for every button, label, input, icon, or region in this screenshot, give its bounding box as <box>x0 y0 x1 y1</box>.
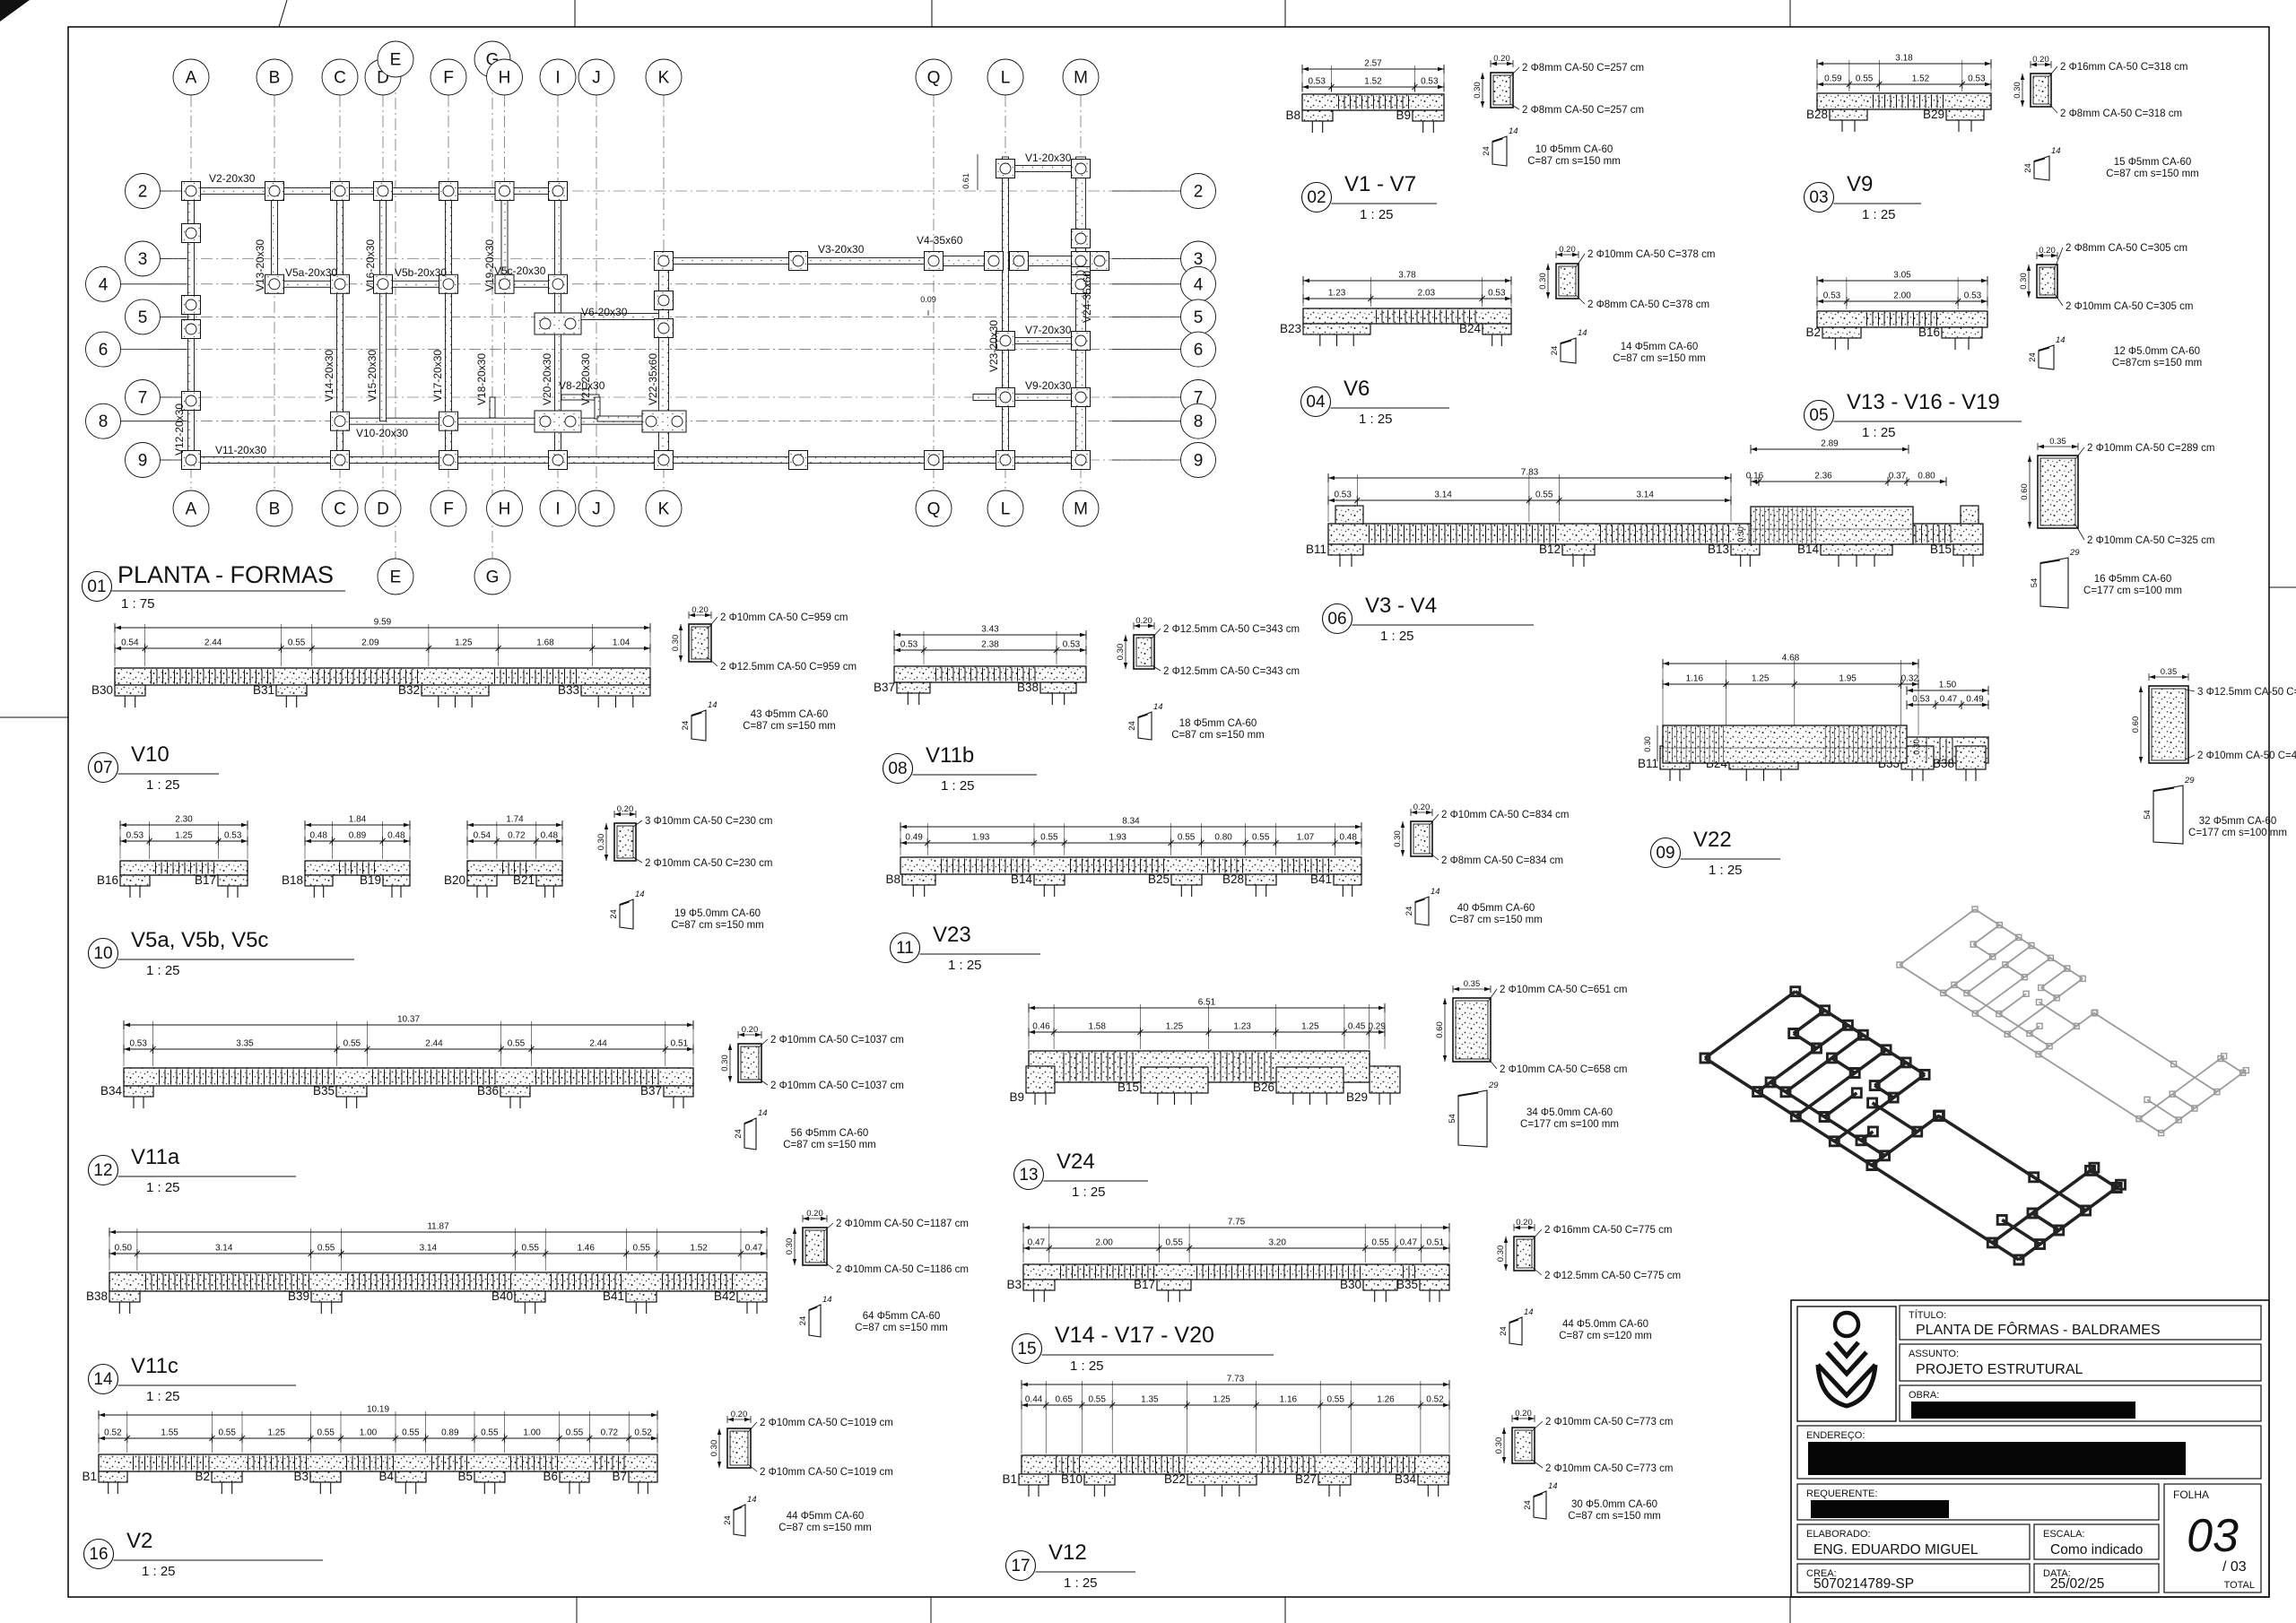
svg-text:1.16: 1.16 <box>1686 674 1704 684</box>
svg-text:0.55: 0.55 <box>1326 1395 1344 1405</box>
svg-text:PLANTA - FORMAS: PLANTA - FORMAS <box>117 561 334 588</box>
svg-text:3.18: 3.18 <box>1895 54 1913 64</box>
svg-text:54: 54 <box>1448 1114 1457 1124</box>
svg-text:B12: B12 <box>1539 542 1561 556</box>
svg-text:15: 15 <box>1017 1340 1036 1358</box>
svg-text:0.20: 0.20 <box>1135 616 1152 626</box>
svg-text:0.55: 0.55 <box>1371 1238 1389 1248</box>
svg-text:0.53: 0.53 <box>1823 291 1841 301</box>
svg-text:2 Φ12.5mm CA-50 C=775 cm: 2 Φ12.5mm CA-50 C=775 cm <box>1544 1271 1681 1281</box>
svg-text:9: 9 <box>1194 452 1204 471</box>
svg-text:6: 6 <box>1194 341 1204 360</box>
svg-text:H: H <box>499 500 511 519</box>
svg-text:1 : 25: 1 : 25 <box>1862 207 1896 222</box>
svg-text:V12: V12 <box>1048 1541 1087 1565</box>
svg-text:0.20: 0.20 <box>1413 803 1431 812</box>
svg-text:7: 7 <box>138 389 148 408</box>
svg-text:/ 03: / 03 <box>2222 1559 2247 1575</box>
svg-text:V22-35x60: V22-35x60 <box>647 353 659 405</box>
svg-text:I: I <box>555 500 560 519</box>
svg-text:0.47: 0.47 <box>745 1244 763 1254</box>
svg-text:43 Φ5mm CA-60: 43 Φ5mm CA-60 <box>751 709 829 720</box>
svg-text:56 Φ5mm CA-60: 56 Φ5mm CA-60 <box>791 1128 869 1139</box>
svg-text:0.30: 0.30 <box>671 635 681 652</box>
svg-text:I: I <box>555 69 560 88</box>
svg-text:0.30: 0.30 <box>2019 273 2029 290</box>
svg-text:PROJETO ESTRUTURAL: PROJETO ESTRUTURAL <box>1916 1362 2083 1377</box>
svg-text:14: 14 <box>1524 1307 1534 1317</box>
svg-text:B30: B30 <box>1340 1278 1361 1291</box>
svg-text:0.53: 0.53 <box>1912 695 1930 705</box>
svg-text:V11b: V11b <box>926 743 974 768</box>
svg-text:1.00: 1.00 <box>360 1428 378 1438</box>
svg-text:0.53: 0.53 <box>1968 74 1986 84</box>
svg-text:1 : 25: 1 : 25 <box>146 1180 180 1195</box>
svg-text:C=177 cm s=100 mm: C=177 cm s=100 mm <box>2083 586 2182 596</box>
svg-text:0.20: 0.20 <box>1515 1409 1532 1419</box>
svg-text:V12-20x30: V12-20x30 <box>173 404 186 456</box>
svg-text:C=177 cm s=100 mm: C=177 cm s=100 mm <box>1520 1119 1619 1130</box>
svg-text:B8: B8 <box>1285 108 1300 122</box>
svg-text:C=87 cm s=150 mm: C=87 cm s=150 mm <box>2106 169 2199 179</box>
svg-text:0.30: 0.30 <box>1912 739 1921 755</box>
svg-text:B10: B10 <box>1061 1472 1083 1486</box>
svg-text:14: 14 <box>758 1108 768 1118</box>
svg-text:1 : 25: 1 : 25 <box>1862 425 1896 440</box>
svg-text:B32: B32 <box>398 683 420 697</box>
svg-text:0.80: 0.80 <box>1918 472 1935 482</box>
svg-text:0.30: 0.30 <box>709 1440 719 1457</box>
svg-text:B6: B6 <box>543 1470 558 1483</box>
svg-text:C: C <box>334 69 346 88</box>
svg-text:Q: Q <box>927 69 941 88</box>
svg-text:0.53: 0.53 <box>224 831 242 841</box>
svg-text:PLANTA DE FÔRMAS - BALDRAMES: PLANTA DE FÔRMAS - BALDRAMES <box>1916 1321 2161 1338</box>
svg-text:2 Φ8mm CA-50 C=305 cm: 2 Φ8mm CA-50 C=305 cm <box>2066 243 2187 254</box>
svg-text:3 Φ12.5mm CA-50 C=468 cm: 3 Φ12.5mm CA-50 C=468 cm <box>2197 687 2296 698</box>
svg-text:B8: B8 <box>885 872 900 886</box>
svg-text:1 : 25: 1 : 25 <box>1709 863 1743 878</box>
svg-text:B23: B23 <box>1280 322 1301 335</box>
svg-text:V13-20x30: V13-20x30 <box>254 239 266 291</box>
svg-text:19 Φ5.0mm CA-60: 19 Φ5.0mm CA-60 <box>674 908 761 919</box>
svg-text:2 Φ8mm CA-50 C=257 cm: 2 Φ8mm CA-50 C=257 cm <box>1522 63 1644 74</box>
svg-text:14: 14 <box>822 1295 832 1305</box>
svg-text:0.55: 0.55 <box>1535 490 1553 500</box>
svg-text:24: 24 <box>2023 163 2033 173</box>
svg-text:15 Φ5mm CA-60: 15 Φ5mm CA-60 <box>2114 157 2192 168</box>
svg-text:C=87 cm s=150 mm: C=87 cm s=150 mm <box>671 920 764 931</box>
svg-text:B15: B15 <box>1930 542 1952 556</box>
svg-text:2.44: 2.44 <box>204 638 222 648</box>
svg-text:2: 2 <box>1194 183 1204 202</box>
svg-text:24: 24 <box>1550 346 1560 356</box>
svg-text:1.16: 1.16 <box>1280 1395 1298 1405</box>
svg-text:0.47: 0.47 <box>1028 1238 1046 1248</box>
svg-text:0.54: 0.54 <box>121 638 139 648</box>
svg-text:06: 06 <box>1327 610 1346 629</box>
svg-text:0.30: 0.30 <box>1643 736 1652 752</box>
svg-text:B: B <box>269 69 281 88</box>
svg-text:0.30: 0.30 <box>785 1238 795 1255</box>
svg-text:2: 2 <box>138 183 148 202</box>
svg-text:1 : 25: 1 : 25 <box>146 963 180 978</box>
svg-text:1.58: 1.58 <box>1088 1022 1106 1032</box>
svg-text:2 Φ10mm CA-50 C=305 cm: 2 Φ10mm CA-50 C=305 cm <box>2066 301 2193 312</box>
svg-text:7.73: 7.73 <box>1227 1375 1245 1384</box>
svg-text:1.52: 1.52 <box>690 1244 708 1254</box>
svg-text:2 Φ16mm CA-50 C=775 cm: 2 Φ16mm CA-50 C=775 cm <box>1544 1225 1672 1236</box>
svg-text:V2-20x30: V2-20x30 <box>209 172 256 185</box>
svg-text:B18: B18 <box>282 873 303 887</box>
svg-text:V23-20x30: V23-20x30 <box>987 320 1000 372</box>
svg-text:2 Φ12.5mm CA-50 C=343 cm: 2 Φ12.5mm CA-50 C=343 cm <box>1163 624 1300 635</box>
svg-text:J: J <box>592 500 601 519</box>
svg-text:2 Φ8mm CA-50 C=318 cm: 2 Φ8mm CA-50 C=318 cm <box>2060 108 2182 119</box>
svg-text:1.07: 1.07 <box>1297 833 1315 843</box>
svg-text:1 : 25: 1 : 25 <box>941 778 975 794</box>
svg-text:0.30: 0.30 <box>1538 273 1548 290</box>
svg-text:0.55: 0.55 <box>1040 833 1058 843</box>
svg-text:1.93: 1.93 <box>972 833 990 843</box>
svg-text:M: M <box>1074 500 1088 519</box>
svg-text:0.16: 0.16 <box>1746 472 1764 482</box>
svg-text:V10-20x30: V10-20x30 <box>356 427 408 439</box>
svg-text:0.20: 0.20 <box>806 1209 823 1219</box>
svg-text:1.25: 1.25 <box>1213 1395 1231 1405</box>
svg-text:V5a-20x30: V5a-20x30 <box>285 266 337 279</box>
svg-text:V6-20x30: V6-20x30 <box>581 306 628 318</box>
svg-text:2 Φ10mm CA-50 C=773 cm: 2 Φ10mm CA-50 C=773 cm <box>1545 1463 1673 1474</box>
svg-text:2.03: 2.03 <box>1418 289 1436 299</box>
svg-text:B38: B38 <box>86 1289 108 1303</box>
svg-text:24: 24 <box>2028 352 2038 362</box>
svg-text:2 Φ10mm CA-50 C=289 cm: 2 Φ10mm CA-50 C=289 cm <box>2087 443 2214 454</box>
svg-text:2 Φ10mm CA-50 C=773 cm: 2 Φ10mm CA-50 C=773 cm <box>1545 1417 1673 1428</box>
svg-text:0.32: 0.32 <box>1901 674 1919 684</box>
svg-text:1.52: 1.52 <box>1364 77 1382 87</box>
svg-text:2 Φ8mm CA-50 C=834 cm: 2 Φ8mm CA-50 C=834 cm <box>1441 855 1563 866</box>
svg-text:08: 08 <box>888 759 907 778</box>
svg-text:0.20: 0.20 <box>2032 55 2049 65</box>
svg-text:Como indicado: Como indicado <box>2050 1542 2143 1558</box>
svg-text:0.61: 0.61 <box>961 173 970 189</box>
svg-text:V13 - V16 - V19: V13 - V16 - V19 <box>1847 390 2000 414</box>
svg-text:6: 6 <box>99 341 109 360</box>
svg-text:1.93: 1.93 <box>1109 833 1126 843</box>
svg-text:24: 24 <box>681 721 691 731</box>
svg-text:B28: B28 <box>1806 108 1828 121</box>
svg-text:0.55: 0.55 <box>1178 833 1196 843</box>
svg-text:B3: B3 <box>1006 1278 1022 1291</box>
svg-text:0.49: 0.49 <box>1966 695 1984 705</box>
svg-text:10.19: 10.19 <box>367 1405 389 1415</box>
svg-text:B39: B39 <box>288 1289 309 1303</box>
svg-text:Q: Q <box>927 500 941 519</box>
svg-text:8.34: 8.34 <box>1122 817 1140 827</box>
svg-text:14: 14 <box>1578 328 1587 338</box>
svg-text:3.78: 3.78 <box>1398 271 1416 281</box>
svg-text:C=87 cm s=150 mm: C=87 cm s=150 mm <box>855 1323 948 1333</box>
svg-text:C=87 cm s=150 mm: C=87 cm s=150 mm <box>783 1140 876 1150</box>
svg-text:04: 04 <box>1306 393 1326 412</box>
svg-text:7.83: 7.83 <box>1521 468 1539 478</box>
svg-text:1.23: 1.23 <box>1233 1022 1251 1032</box>
svg-text:44 Φ5mm CA-60: 44 Φ5mm CA-60 <box>787 1511 865 1522</box>
svg-text:V11-20x30: V11-20x30 <box>215 444 266 456</box>
svg-text:2 Φ12.5mm CA-50 C=343 cm: 2 Φ12.5mm CA-50 C=343 cm <box>1163 666 1300 677</box>
svg-text:24: 24 <box>609 909 619 919</box>
svg-text:3.35: 3.35 <box>236 1039 254 1049</box>
svg-text:0.55: 0.55 <box>521 1244 539 1254</box>
svg-text:32 Φ5mm CA-60: 32 Φ5mm CA-60 <box>2199 816 2277 827</box>
svg-text:1.46: 1.46 <box>577 1244 595 1254</box>
svg-text:B5: B5 <box>457 1470 473 1483</box>
svg-text:2 Φ10mm CA-50 C=378 cm: 2 Φ10mm CA-50 C=378 cm <box>1587 249 1715 260</box>
svg-text:V11c: V11c <box>131 1354 178 1378</box>
svg-text:14: 14 <box>708 700 717 710</box>
svg-text:0.54: 0.54 <box>474 831 491 841</box>
svg-text:B11: B11 <box>1638 757 1658 770</box>
svg-text:1.25: 1.25 <box>1301 1022 1319 1032</box>
svg-text:1.84: 1.84 <box>349 815 367 825</box>
svg-text:10.37: 10.37 <box>397 1015 420 1025</box>
svg-text:2 Φ10mm CA-50 C=1019 cm: 2 Φ10mm CA-50 C=1019 cm <box>760 1418 893 1428</box>
svg-text:1.00: 1.00 <box>523 1428 541 1438</box>
svg-text:25/02/25: 25/02/25 <box>2050 1576 2104 1592</box>
svg-text:B2: B2 <box>195 1470 210 1483</box>
svg-text:2.38: 2.38 <box>981 640 999 650</box>
svg-text:0.55: 0.55 <box>1088 1395 1106 1405</box>
svg-text:0.37: 0.37 <box>1889 472 1907 482</box>
svg-text:0.53: 0.53 <box>126 831 144 841</box>
svg-text:0.30: 0.30 <box>1496 1245 1506 1263</box>
svg-text:C=177 cm s=100 mm: C=177 cm s=100 mm <box>2188 828 2287 838</box>
svg-text:V5b-20x30: V5b-20x30 <box>395 266 447 279</box>
svg-text:1 : 25: 1 : 25 <box>1064 1575 1098 1591</box>
svg-text:B41: B41 <box>603 1289 624 1303</box>
svg-text:1.04: 1.04 <box>613 638 631 648</box>
svg-text:V24-35x60: V24-35x60 <box>1081 271 1093 323</box>
svg-text:3.20: 3.20 <box>1268 1238 1286 1248</box>
svg-text:0.30: 0.30 <box>1393 830 1403 847</box>
svg-text:13: 13 <box>1019 1166 1038 1185</box>
svg-text:C: C <box>334 500 346 519</box>
svg-text:2.30: 2.30 <box>175 815 193 825</box>
svg-text:0.53: 0.53 <box>129 1039 147 1049</box>
svg-text:B38: B38 <box>1017 681 1039 694</box>
svg-text:V17-20x30: V17-20x30 <box>431 350 444 402</box>
svg-text:A: A <box>186 69 197 88</box>
svg-text:2.44: 2.44 <box>425 1039 443 1049</box>
svg-text:1.26: 1.26 <box>1377 1395 1395 1405</box>
svg-text:1 : 25: 1 : 25 <box>1380 629 1414 644</box>
svg-text:3.14: 3.14 <box>420 1244 438 1254</box>
svg-text:2 Φ10mm CA-50 C=1019 cm: 2 Φ10mm CA-50 C=1019 cm <box>760 1467 893 1478</box>
svg-text:24: 24 <box>734 1129 744 1139</box>
svg-text:B: B <box>269 500 281 519</box>
svg-text:07: 07 <box>93 759 112 777</box>
svg-text:B11: B11 <box>1306 542 1326 556</box>
svg-text:V16-20x30: V16-20x30 <box>364 239 377 291</box>
svg-text:0.51: 0.51 <box>671 1039 689 1049</box>
svg-text:0.53: 0.53 <box>1421 77 1439 87</box>
svg-text:0.35: 0.35 <box>1464 979 1481 989</box>
svg-text:V20-20x30: V20-20x30 <box>541 353 553 405</box>
svg-text:H: H <box>499 69 511 88</box>
svg-text:V9: V9 <box>1847 172 1873 196</box>
svg-text:14: 14 <box>1548 1481 1558 1491</box>
svg-text:B16: B16 <box>97 873 118 887</box>
svg-text:B31: B31 <box>253 683 274 697</box>
svg-text:0.46: 0.46 <box>1032 1022 1050 1032</box>
svg-text:8: 8 <box>1194 412 1204 431</box>
svg-text:B35: B35 <box>1396 1278 1418 1291</box>
svg-text:B15: B15 <box>1118 1081 1139 1094</box>
svg-text:03: 03 <box>2187 1510 2239 1562</box>
svg-text:2 Φ8mm CA-50 C=257 cm: 2 Φ8mm CA-50 C=257 cm <box>1522 105 1644 116</box>
svg-text:B24: B24 <box>1459 322 1482 335</box>
svg-text:18 Φ5mm CA-60: 18 Φ5mm CA-60 <box>1179 718 1257 729</box>
svg-text:K: K <box>658 500 670 519</box>
svg-text:2 Φ8mm CA-50 C=378 cm: 2 Φ8mm CA-50 C=378 cm <box>1587 299 1709 310</box>
svg-text:0.55: 0.55 <box>317 1428 335 1438</box>
svg-text:B37: B37 <box>640 1084 662 1098</box>
svg-text:V14-20x30: V14-20x30 <box>323 350 335 402</box>
svg-text:E: E <box>390 51 402 70</box>
svg-text:14: 14 <box>635 890 645 899</box>
svg-text:4: 4 <box>1194 275 1204 294</box>
svg-text:2 Φ10mm CA-50 C=1186 cm: 2 Φ10mm CA-50 C=1186 cm <box>836 1264 969 1275</box>
svg-text:0.30: 0.30 <box>2013 82 2022 99</box>
svg-text:2.00: 2.00 <box>1095 1238 1113 1248</box>
svg-text:V2: V2 <box>126 1529 152 1553</box>
svg-text:0.53: 0.53 <box>900 640 918 650</box>
svg-text:1.55: 1.55 <box>161 1428 178 1438</box>
svg-text:0.30: 0.30 <box>720 1055 730 1072</box>
svg-text:1 : 25: 1 : 25 <box>1360 207 1394 222</box>
svg-text:64 Φ5mm CA-60: 64 Φ5mm CA-60 <box>863 1311 941 1322</box>
svg-text:V6: V6 <box>1344 377 1370 401</box>
svg-text:0.49: 0.49 <box>905 833 923 843</box>
svg-text:B35: B35 <box>313 1084 335 1098</box>
svg-text:V24: V24 <box>1057 1150 1095 1174</box>
svg-text:54: 54 <box>2030 578 2039 588</box>
svg-text:K: K <box>658 69 670 88</box>
svg-text:0.55: 0.55 <box>1252 833 1270 843</box>
svg-text:1.25: 1.25 <box>1166 1022 1184 1032</box>
svg-text:B29: B29 <box>1923 108 1944 121</box>
svg-text:0.20: 0.20 <box>731 1410 748 1419</box>
svg-text:C=87 cm s=150 mm: C=87 cm s=150 mm <box>743 721 836 732</box>
svg-text:C=87 cm s=150 mm: C=87 cm s=150 mm <box>1449 915 1543 925</box>
svg-text:V4-35x60: V4-35x60 <box>917 234 963 247</box>
svg-text:2 Φ10mm CA-50 C=1187 cm: 2 Φ10mm CA-50 C=1187 cm <box>836 1219 969 1229</box>
svg-text:B9: B9 <box>1396 108 1411 122</box>
svg-text:1.25: 1.25 <box>1752 674 1770 684</box>
svg-text:3 Φ10mm CA-50 C=230 cm: 3 Φ10mm CA-50 C=230 cm <box>645 816 772 827</box>
svg-text:0.55: 0.55 <box>481 1428 499 1438</box>
svg-text:2 Φ16mm CA-50 C=318 cm: 2 Φ16mm CA-50 C=318 cm <box>2060 62 2187 73</box>
svg-text:14: 14 <box>2051 146 2061 156</box>
svg-text:0.30: 0.30 <box>1116 644 1126 661</box>
svg-text:12 Φ5.0mm CA-60: 12 Φ5.0mm CA-60 <box>2114 346 2200 357</box>
svg-text:0.72: 0.72 <box>601 1428 619 1438</box>
svg-text:B13: B13 <box>1708 542 1729 556</box>
svg-text:2.57: 2.57 <box>1364 59 1382 69</box>
svg-text:24: 24 <box>1127 721 1137 731</box>
svg-text:B37: B37 <box>874 681 895 694</box>
svg-text:ASSUNTO:: ASSUNTO: <box>1909 1349 1959 1359</box>
svg-text:REQUERENTE:: REQUERENTE: <box>1806 1488 1877 1499</box>
svg-text:3: 3 <box>138 250 148 269</box>
svg-text:24: 24 <box>723 1515 733 1525</box>
svg-text:F: F <box>443 69 454 88</box>
svg-text:0.53: 0.53 <box>1063 640 1081 650</box>
svg-text:1.35: 1.35 <box>1141 1395 1159 1405</box>
svg-text:34 Φ5.0mm CA-60: 34 Φ5.0mm CA-60 <box>1526 1107 1613 1118</box>
svg-text:V10: V10 <box>131 742 170 767</box>
svg-text:B34: B34 <box>1395 1472 1417 1486</box>
svg-text:0.35: 0.35 <box>2049 437 2066 447</box>
svg-text:29: 29 <box>2069 548 2080 558</box>
svg-text:B33: B33 <box>558 683 579 697</box>
svg-text:09: 09 <box>1656 844 1674 863</box>
svg-text:B17: B17 <box>195 873 216 887</box>
svg-text:0.35: 0.35 <box>2161 667 2178 677</box>
svg-text:V5a, V5b, V5c: V5a, V5b, V5c <box>131 928 268 952</box>
svg-text:B30: B30 <box>91 683 113 697</box>
svg-text:2 Φ10mm CA-50 C=834 cm: 2 Φ10mm CA-50 C=834 cm <box>1441 810 1569 820</box>
svg-text:V14 - V17 - V20: V14 - V17 - V20 <box>1055 1323 1214 1348</box>
svg-text:ENDEREÇO:: ENDEREÇO: <box>1806 1430 1865 1441</box>
svg-text:B40: B40 <box>491 1289 513 1303</box>
svg-text:0.29: 0.29 <box>1368 1022 1386 1032</box>
svg-text:1.50: 1.50 <box>1939 681 1957 690</box>
svg-text:0.20: 0.20 <box>1559 245 1576 255</box>
svg-text:54: 54 <box>2143 810 2152 820</box>
svg-text:V11a: V11a <box>131 1145 180 1169</box>
svg-text:2.09: 2.09 <box>361 638 379 648</box>
svg-text:2 Φ10mm CA-50 C=1037 cm: 2 Φ10mm CA-50 C=1037 cm <box>770 1035 904 1046</box>
svg-text:14: 14 <box>1431 887 1440 897</box>
svg-text:C=87 cm s=150 mm: C=87 cm s=150 mm <box>778 1523 872 1533</box>
svg-text:B41: B41 <box>1310 872 1332 886</box>
svg-text:B21: B21 <box>513 873 535 887</box>
svg-text:14: 14 <box>1153 702 1163 712</box>
svg-text:0.20: 0.20 <box>1516 1218 1533 1228</box>
svg-text:V7-20x30: V7-20x30 <box>1025 324 1072 336</box>
svg-text:8: 8 <box>99 412 109 431</box>
svg-text:V23: V23 <box>933 923 971 947</box>
svg-text:9.59: 9.59 <box>374 618 392 628</box>
svg-text:FOLHA: FOLHA <box>2173 1488 2209 1501</box>
svg-text:0.30: 0.30 <box>1473 82 1483 99</box>
svg-text:B20: B20 <box>444 873 465 887</box>
svg-text:2 Φ10mm CA-50 C=488 cm: 2 Φ10mm CA-50 C=488 cm <box>2197 751 2296 761</box>
svg-text:V18-20x30: V18-20x30 <box>475 353 488 405</box>
svg-text:B42: B42 <box>714 1289 735 1303</box>
svg-text:1.23: 1.23 <box>1328 289 1346 299</box>
svg-text:4.68: 4.68 <box>1782 654 1800 664</box>
svg-text:5070214789-SP: 5070214789-SP <box>1813 1576 1914 1592</box>
svg-text:0.44: 0.44 <box>1025 1395 1043 1405</box>
svg-text:B34: B34 <box>100 1084 123 1098</box>
svg-text:J: J <box>592 69 601 88</box>
svg-text:0.55: 0.55 <box>1165 1238 1183 1248</box>
svg-text:V3-20x30: V3-20x30 <box>818 243 865 256</box>
svg-text:B28: B28 <box>1222 872 1244 886</box>
